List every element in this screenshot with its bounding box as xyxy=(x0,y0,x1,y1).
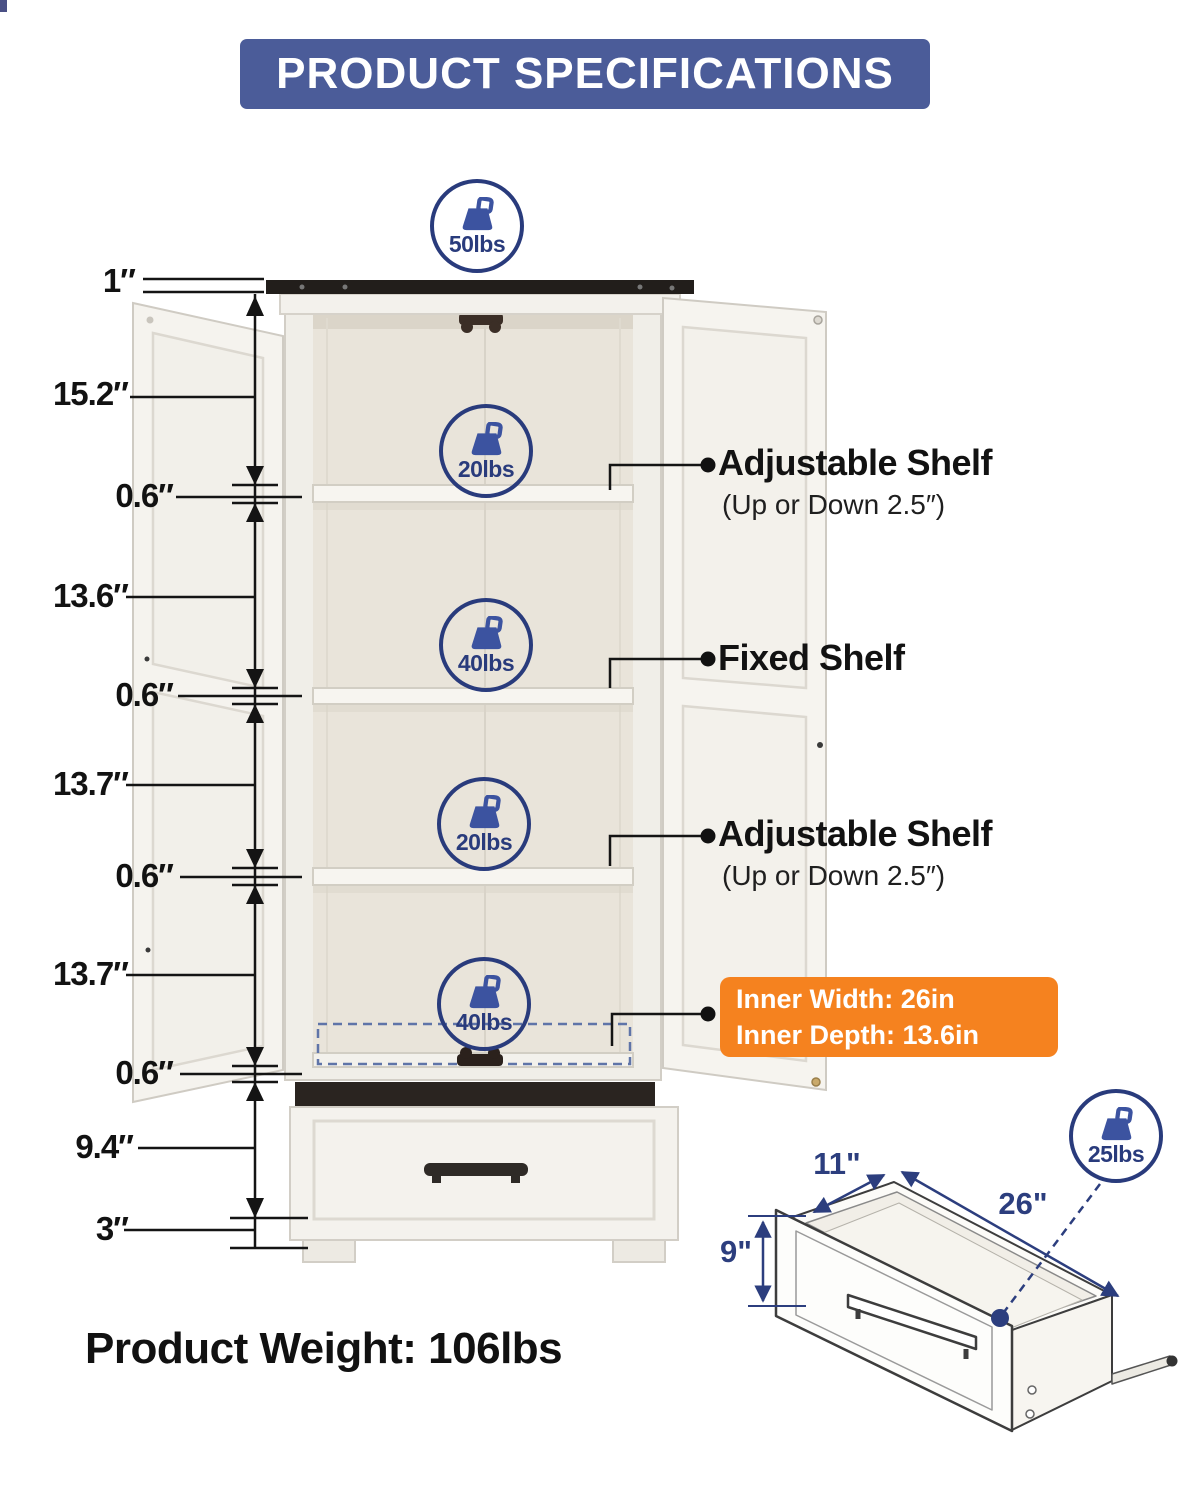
weight-icon xyxy=(462,795,506,831)
cabinet-drawer-front xyxy=(290,1107,678,1240)
callout-adjustable-shelf-1-title: Adjustable Shelf xyxy=(718,442,992,484)
product-specification-sheet: PRODUCT SPECIFICATIONS 1″ 15.2″ 0.6″ 13.… xyxy=(0,0,1200,1500)
inner-width-text: Inner Width: 26in xyxy=(736,981,1058,1017)
base-trim xyxy=(295,1082,655,1107)
right-foot xyxy=(613,1240,665,1262)
drawer-depth-label: 11" xyxy=(787,1146,887,1182)
dim-section-2: 13.6″ xyxy=(8,577,128,615)
left-foot xyxy=(303,1240,355,1262)
weight-icon xyxy=(455,197,499,233)
weight-badge-label: 40lbs xyxy=(456,1009,512,1036)
page-title: PRODUCT SPECIFICATIONS xyxy=(240,39,930,109)
weight-badge-shelf-4: 40lbs xyxy=(437,957,531,1051)
weight-badge-label: 20lbs xyxy=(456,829,512,856)
drawer-capacity-dot xyxy=(991,1309,1009,1327)
dim-shelf-2: 0.6″ xyxy=(53,676,173,714)
right-door xyxy=(663,298,826,1090)
weight-badge-label: 50lbs xyxy=(449,231,505,258)
drawer-handle xyxy=(424,1163,528,1176)
dim-section-1: 15.2″ xyxy=(8,375,128,413)
page-title-text: PRODUCT SPECIFICATIONS xyxy=(276,49,894,99)
weight-icon xyxy=(462,975,506,1011)
adjustable-shelf-2 xyxy=(313,868,633,893)
product-weight-text: Product Weight: 106lbs xyxy=(85,1324,562,1374)
dim-base-height: 3″ xyxy=(8,1210,128,1248)
dim-bottom-board: 0.6″ xyxy=(53,1054,173,1092)
dim-top-thickness: 1″ xyxy=(15,262,135,300)
weight-icon xyxy=(1094,1107,1138,1143)
weight-badge-shelf-1: 20lbs xyxy=(439,404,533,498)
dim-shelf-1: 0.6″ xyxy=(53,477,173,515)
drawer-height-label: 9" xyxy=(686,1234,786,1270)
weight-badge-shelf-2: 40lbs xyxy=(439,598,533,692)
fixed-shelf xyxy=(313,688,633,712)
corner-mark xyxy=(0,0,7,12)
dim-shelf-3: 0.6″ xyxy=(53,857,173,895)
dim-drawer-height: 9.4″ xyxy=(13,1128,133,1166)
drawer-width-label: 26" xyxy=(973,1186,1073,1222)
weight-badge-label: 25lbs xyxy=(1088,1141,1144,1168)
weight-icon xyxy=(464,616,508,652)
callout-adjustable-shelf-2-sub: (Up or Down 2.5″) xyxy=(722,860,945,892)
callout-fixed-shelf-title: Fixed Shelf xyxy=(718,637,905,679)
inner-depth-text: Inner Depth: 13.6in xyxy=(736,1017,1058,1053)
cabinet-top xyxy=(266,280,694,314)
weight-badge-label: 20lbs xyxy=(458,456,514,483)
callout-adjustable-shelf-2-title: Adjustable Shelf xyxy=(718,813,992,855)
callout-adjustable-shelf-1-sub: (Up or Down 2.5″) xyxy=(722,489,945,521)
weight-badge-drawer: 25lbs xyxy=(1069,1089,1163,1183)
inner-dimensions-box: Inner Width: 26in Inner Depth: 13.6in xyxy=(720,977,1058,1057)
weight-icon xyxy=(464,422,508,458)
cabinet-diagram xyxy=(0,0,1200,1500)
dim-section-4: 13.7″ xyxy=(8,955,128,993)
weight-badge-shelf-3: 20lbs xyxy=(437,777,531,871)
weight-badge-top: 50lbs xyxy=(430,179,524,273)
weight-badge-label: 40lbs xyxy=(458,650,514,677)
dim-section-3: 13.7″ xyxy=(8,765,128,803)
